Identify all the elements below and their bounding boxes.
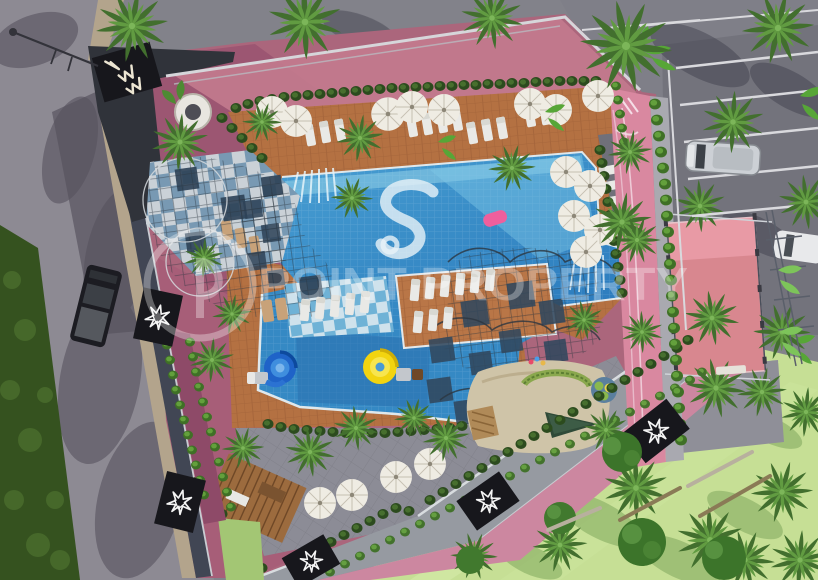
- svg-text:POINT PROPERTY: POINT PROPERTY: [258, 258, 688, 310]
